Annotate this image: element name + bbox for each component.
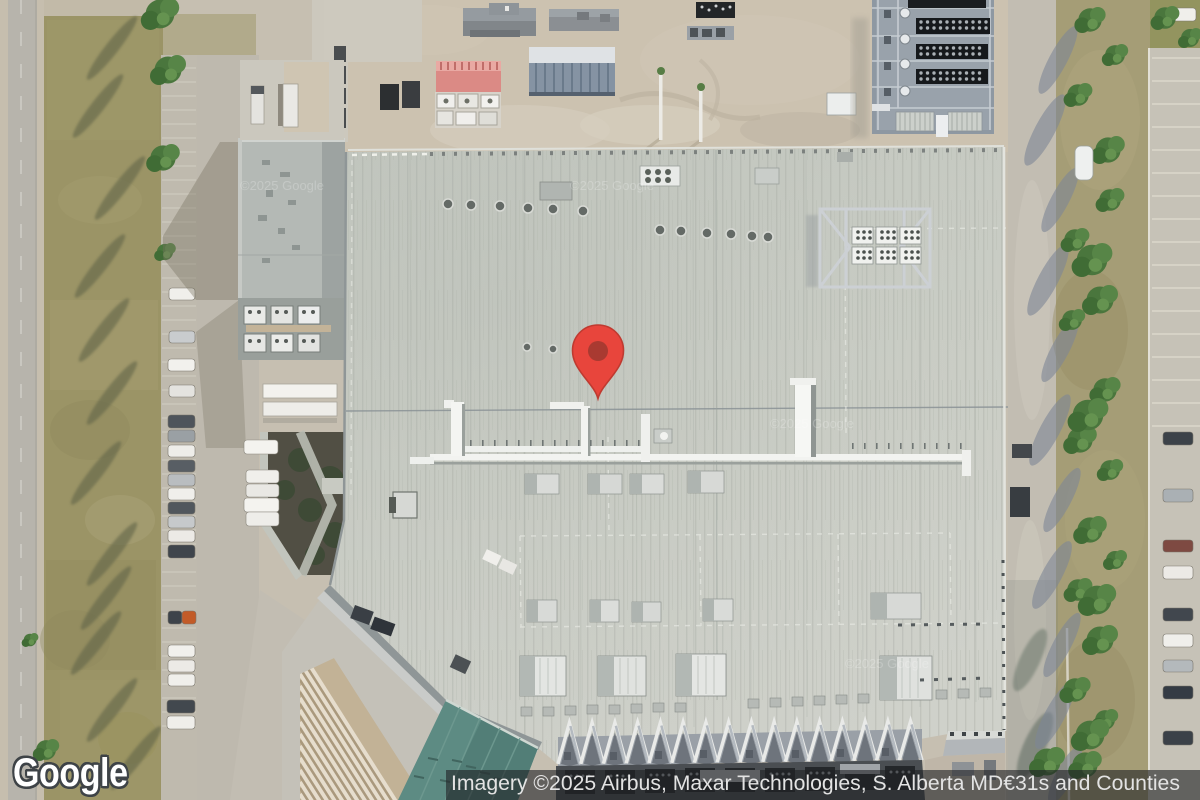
svg-text:©2025 Google: ©2025 Google [240, 178, 324, 193]
svg-text:©2025 Google: ©2025 Google [770, 416, 854, 431]
svg-text:©2025 Google: ©2025 Google [845, 656, 929, 671]
svg-text:©2025 Google: ©2025 Google [570, 178, 654, 193]
